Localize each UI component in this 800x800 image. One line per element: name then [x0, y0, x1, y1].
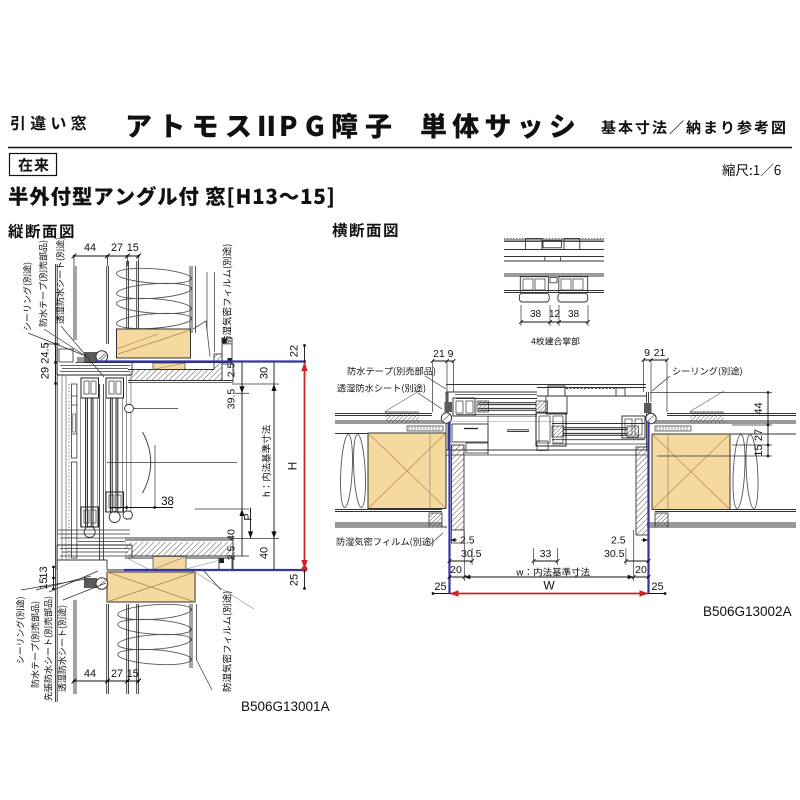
svg-text:21: 21 [654, 347, 666, 359]
svg-text:22: 22 [289, 345, 301, 357]
svg-text:44: 44 [84, 668, 96, 680]
svg-text:21: 21 [433, 348, 445, 360]
svg-text:20: 20 [450, 564, 462, 576]
svg-text:9: 9 [644, 347, 650, 359]
svg-text:13: 13 [38, 566, 50, 578]
svg-text:W: W [543, 579, 555, 593]
svg-text:20: 20 [635, 564, 647, 576]
svg-text:27: 27 [111, 668, 123, 680]
svg-text:29: 29 [40, 367, 52, 379]
svg-text:40: 40 [225, 529, 237, 541]
svg-text:38: 38 [530, 309, 542, 320]
svg-text:39.5: 39.5 [225, 389, 237, 410]
svg-text:30.5: 30.5 [604, 548, 625, 560]
svg-text:30: 30 [259, 367, 271, 379]
svg-text:2.5: 2.5 [460, 535, 475, 547]
svg-text:9: 9 [448, 348, 454, 360]
svg-text:25: 25 [289, 574, 301, 586]
svg-text:2.5: 2.5 [225, 363, 237, 378]
svg-text:B506G13001A: B506G13001A [241, 699, 330, 714]
svg-text:27: 27 [753, 429, 765, 441]
svg-text:38: 38 [161, 496, 174, 508]
svg-text:15: 15 [127, 668, 139, 680]
svg-text:33: 33 [540, 548, 552, 560]
svg-text:12: 12 [549, 309, 561, 320]
svg-text:44: 44 [84, 242, 96, 254]
svg-text:24.5: 24.5 [40, 342, 52, 363]
svg-text:2.5: 2.5 [611, 535, 626, 547]
svg-text:25: 25 [651, 581, 663, 593]
svg-text:H: H [286, 462, 300, 471]
svg-text:15: 15 [127, 242, 139, 254]
svg-text:40: 40 [259, 547, 271, 559]
svg-text:2.5: 2.5 [225, 546, 237, 561]
svg-text:15: 15 [753, 444, 765, 456]
svg-text:44: 44 [753, 402, 765, 414]
svg-text:38: 38 [568, 309, 580, 320]
svg-text:25: 25 [434, 581, 446, 593]
svg-text:B506G13002A: B506G13002A [703, 604, 792, 619]
svg-text:P: P [243, 513, 255, 520]
svg-text:27: 27 [111, 242, 123, 254]
